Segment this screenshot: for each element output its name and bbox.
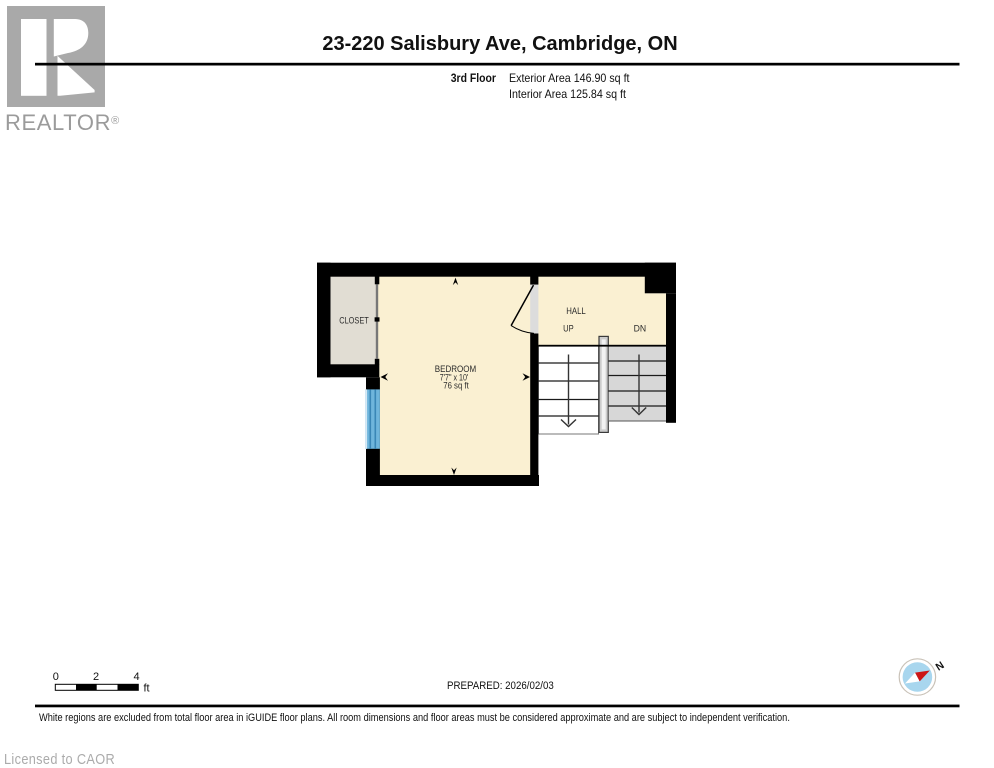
- svg-text:UP: UP: [563, 323, 574, 333]
- svg-text:CLOSET: CLOSET: [339, 315, 369, 325]
- svg-text:N: N: [934, 659, 947, 673]
- svg-text:76 sq ft: 76 sq ft: [443, 381, 469, 391]
- svg-text:HALL: HALL: [566, 306, 586, 316]
- svg-text:4: 4: [133, 671, 139, 683]
- svg-text:DN: DN: [634, 323, 647, 333]
- svg-text:0: 0: [53, 671, 59, 683]
- svg-text:2: 2: [93, 671, 99, 683]
- svg-text:ft: ft: [144, 683, 150, 695]
